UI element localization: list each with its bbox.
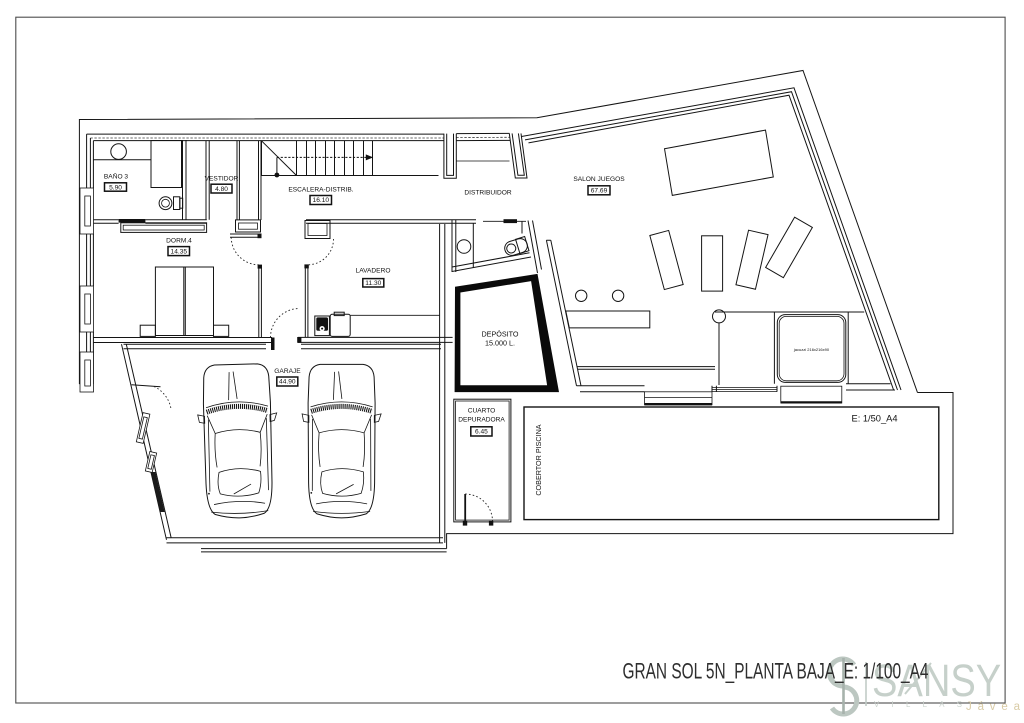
svg-text:15.000 L.: 15.000 L. — [485, 338, 515, 347]
svg-text:GARAJE: GARAJE — [274, 368, 301, 375]
svg-text:11.30: 11.30 — [365, 280, 381, 287]
svg-text:14.35: 14.35 — [171, 248, 188, 255]
svg-text:BAÑO 3: BAÑO 3 — [104, 172, 129, 181]
svg-text:SALON JUEGOS: SALON JUEGOS — [573, 176, 625, 183]
svg-text:ESCALERA-DISTRIB.: ESCALERA-DISTRIB. — [288, 187, 353, 194]
svg-text:DISTRIBUIDOR: DISTRIBUIDOR — [464, 190, 511, 197]
svg-text:DORM.4: DORM.4 — [166, 238, 192, 245]
svg-text:E: 1/50_A4: E: 1/50_A4 — [852, 413, 898, 423]
svg-text:67.69: 67.69 — [591, 188, 608, 195]
svg-text:LAVADERO: LAVADERO — [356, 268, 391, 275]
svg-text:DEPURADORA: DEPURADORA — [458, 417, 505, 424]
svg-text:4.80: 4.80 — [215, 186, 228, 193]
svg-text:6.45: 6.45 — [475, 429, 488, 436]
svg-text:jacuzzi 216x216x90: jacuzzi 216x216x90 — [793, 347, 830, 352]
svg-text:44.90: 44.90 — [279, 379, 296, 386]
svg-text:CUARTO: CUARTO — [468, 408, 496, 415]
svg-text:DEPÓSITO: DEPÓSITO — [481, 330, 518, 339]
svg-text:16.10: 16.10 — [313, 197, 330, 204]
svg-text:COBERTOR PISCINA: COBERTOR PISCINA — [534, 424, 543, 495]
svg-text:GRAN SOL 5N_PLANTA BAJA_E: 1/1: GRAN SOL 5N_PLANTA BAJA_E: 1/100_A4 — [623, 660, 929, 684]
svg-text:5.90: 5.90 — [109, 184, 122, 191]
svg-text:VESTIDOR: VESTIDOR — [205, 176, 239, 183]
